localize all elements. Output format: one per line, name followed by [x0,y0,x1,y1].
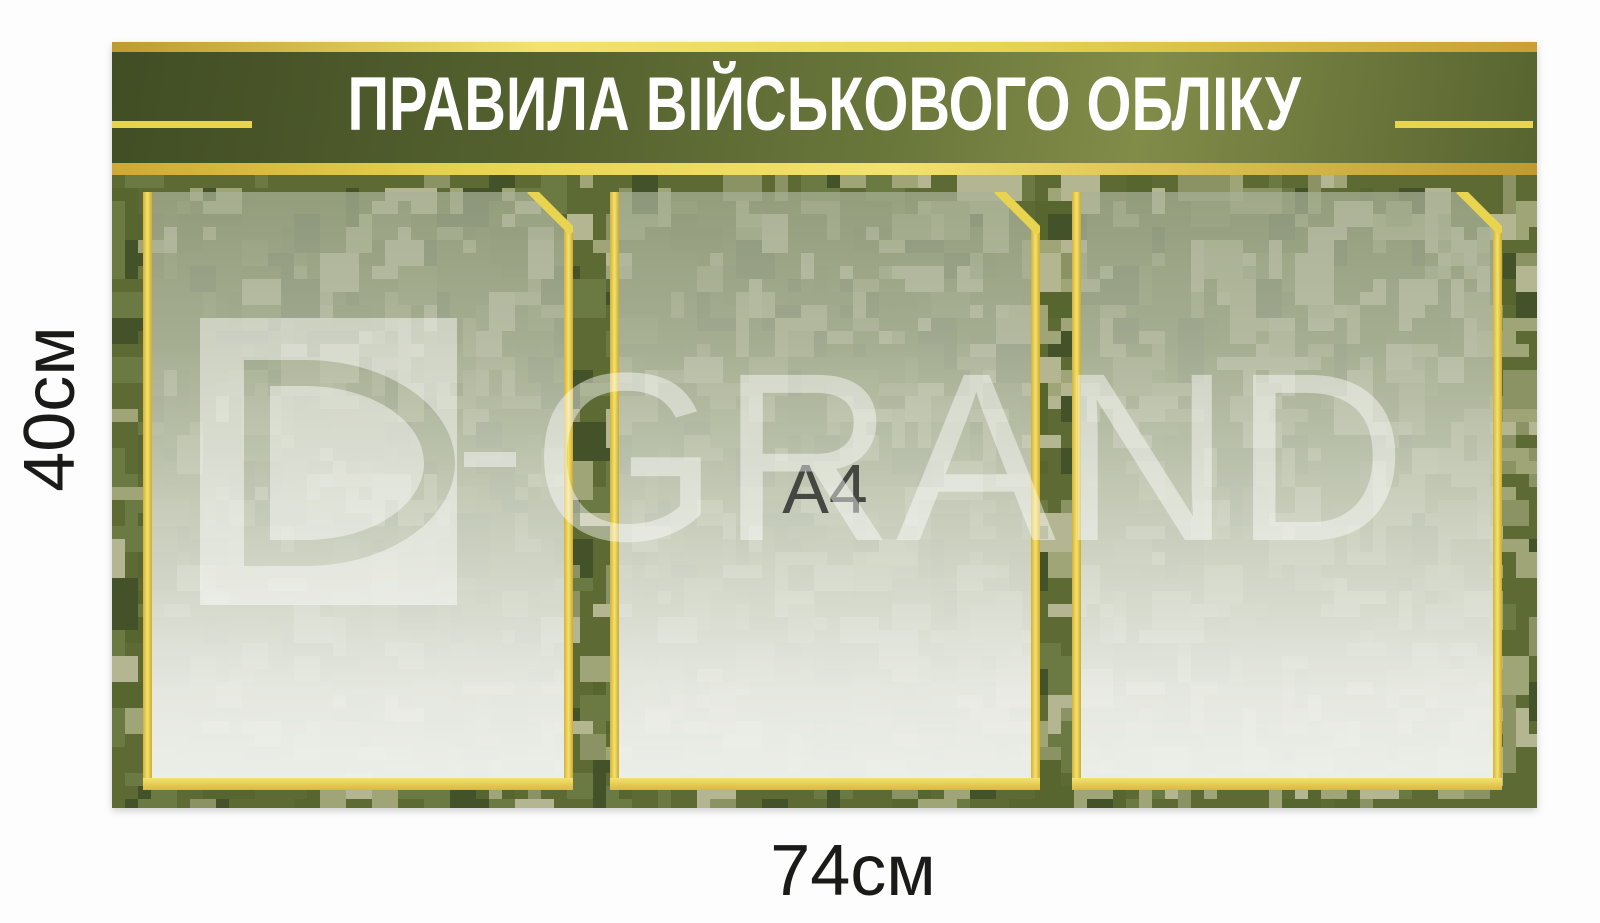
camo-block [1334,799,1360,808]
title-divider-right [1395,121,1533,128]
camo-block [580,734,606,760]
camo-block [1360,799,1373,808]
camo-block [1516,266,1537,292]
pocket-a4-left [143,192,573,790]
pocket-frame-left [143,192,152,790]
product-photo: ПРАВИЛА ВІЙСЬКОВОГО ОБЛІКУ A4 [0,0,1600,923]
pocket-frame-right [564,192,573,790]
height-dimension-label: 40см [9,321,91,497]
camo-block [1087,799,1113,808]
camo-block [1529,682,1537,721]
title-divider-left [112,121,252,128]
camo-block [1503,604,1516,630]
camo-block [710,799,736,808]
camo-block [125,175,164,188]
camo-block [1516,201,1537,227]
camo-block [918,799,957,808]
camo-block [1529,617,1537,656]
camo-block [138,799,164,808]
camo-block [723,175,762,188]
camo-block [112,708,125,747]
pocket-frame-left [610,192,619,790]
camo-block [1334,175,1347,188]
camo-block [515,799,554,808]
camo-block [190,799,216,808]
camo-block [112,201,125,240]
pocket-sleeve [1081,192,1493,778]
camo-block [112,448,125,487]
pocket-frame-bottom [143,778,573,790]
camo-block [1503,175,1516,214]
pocket-frame-bottom [1072,778,1502,790]
camo-block [1503,370,1537,409]
width-dimension-label: 74см [703,830,1003,912]
camo-block [593,773,606,799]
pocket-sleeve: A4 [619,192,1031,778]
camo-block [1529,539,1537,552]
camo-block [125,799,138,808]
pocket-frame-bottom [610,778,1040,790]
pocket-frame-right [1493,192,1502,790]
camo-block [1503,318,1537,331]
camo-body: A4 GRAND [112,175,1537,808]
camo-block [580,175,593,188]
camo-block [1516,461,1537,474]
camo-block [1048,695,1061,734]
camo-block [1048,643,1061,656]
board-title: ПРАВИЛА ВІЙСЬКОВОГО ОБЛІКУ [348,61,1301,148]
camo-block [827,175,840,188]
camo-block [1009,799,1048,808]
header-band: ПРАВИЛА ВІЙСЬКОВОГО ОБЛІКУ [112,52,1537,163]
info-board: ПРАВИЛА ВІЙСЬКОВОГО ОБЛІКУ A4 [112,42,1537,808]
pocket-a4-right [1072,192,1502,790]
camo-block [112,656,138,682]
camo-block [762,799,788,808]
camo-block [1282,799,1321,808]
gold-stripe-bottom [112,163,1537,175]
camo-block [112,539,125,578]
camo-block [918,175,931,188]
camo-block [892,175,918,188]
camo-block [840,175,866,188]
camo-block [983,175,996,188]
camo-block [112,578,138,617]
camo-block [1321,175,1334,188]
pocket-sleeve [152,192,564,778]
pocket-frame-right [1031,192,1040,790]
camo-block [1516,292,1537,318]
pocket-a4-center: A4 [610,192,1040,790]
camo-block [112,409,138,422]
camo-block [112,240,125,279]
camo-block [1516,708,1529,747]
camo-block [1529,474,1537,487]
pocket-frame-left [1072,192,1081,790]
camo-block [424,175,450,188]
camo-block [255,175,268,188]
camo-block [294,799,320,808]
pocket-format-label: A4 [782,441,868,529]
camo-block [1048,552,1074,578]
camo-block [580,539,593,578]
gold-stripe-top [112,42,1537,52]
